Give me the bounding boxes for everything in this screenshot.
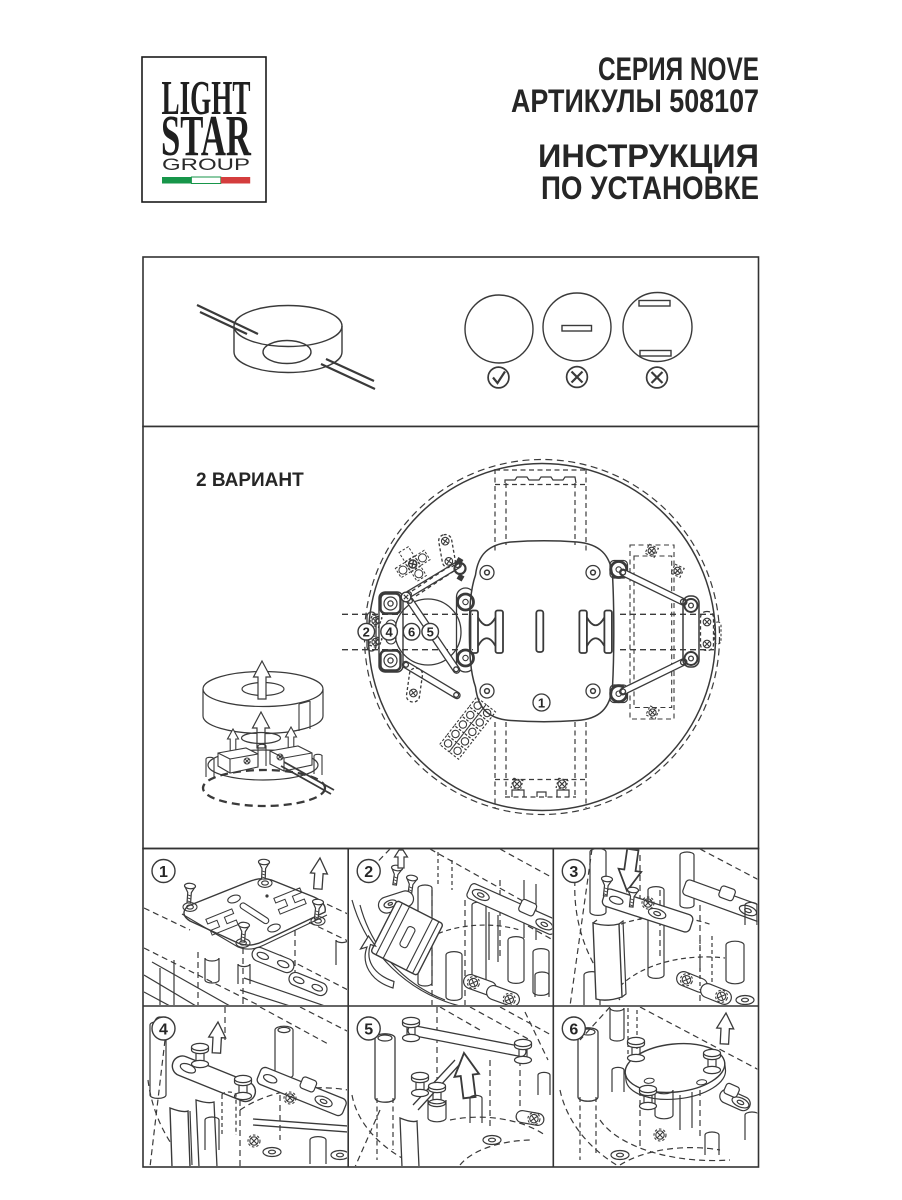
svg-text:5: 5 (427, 624, 434, 639)
svg-text:СЕРИЯ NOVE: СЕРИЯ NOVE (598, 51, 759, 87)
svg-text:АРТИКУЛЫ 508107: АРТИКУЛЫ 508107 (511, 83, 759, 119)
svg-text:5: 5 (364, 1022, 373, 1039)
svg-text:GROUP: GROUP (162, 155, 250, 174)
svg-text:ПО УСТАНОВКЕ: ПО УСТАНОВКЕ (541, 170, 759, 206)
svg-text:4: 4 (159, 1022, 168, 1039)
svg-text:4: 4 (385, 624, 393, 639)
svg-text:2 ВАРИАНТ: 2 ВАРИАНТ (196, 470, 304, 491)
svg-text:6: 6 (408, 624, 415, 639)
svg-text:2: 2 (363, 624, 370, 639)
svg-text:3: 3 (569, 864, 578, 881)
svg-text:1: 1 (538, 696, 545, 711)
svg-text:1: 1 (159, 864, 168, 881)
svg-text:6: 6 (569, 1022, 578, 1039)
svg-text:2: 2 (364, 864, 373, 881)
svg-text:ИНСТРУКЦИЯ: ИНСТРУКЦИЯ (538, 138, 759, 174)
